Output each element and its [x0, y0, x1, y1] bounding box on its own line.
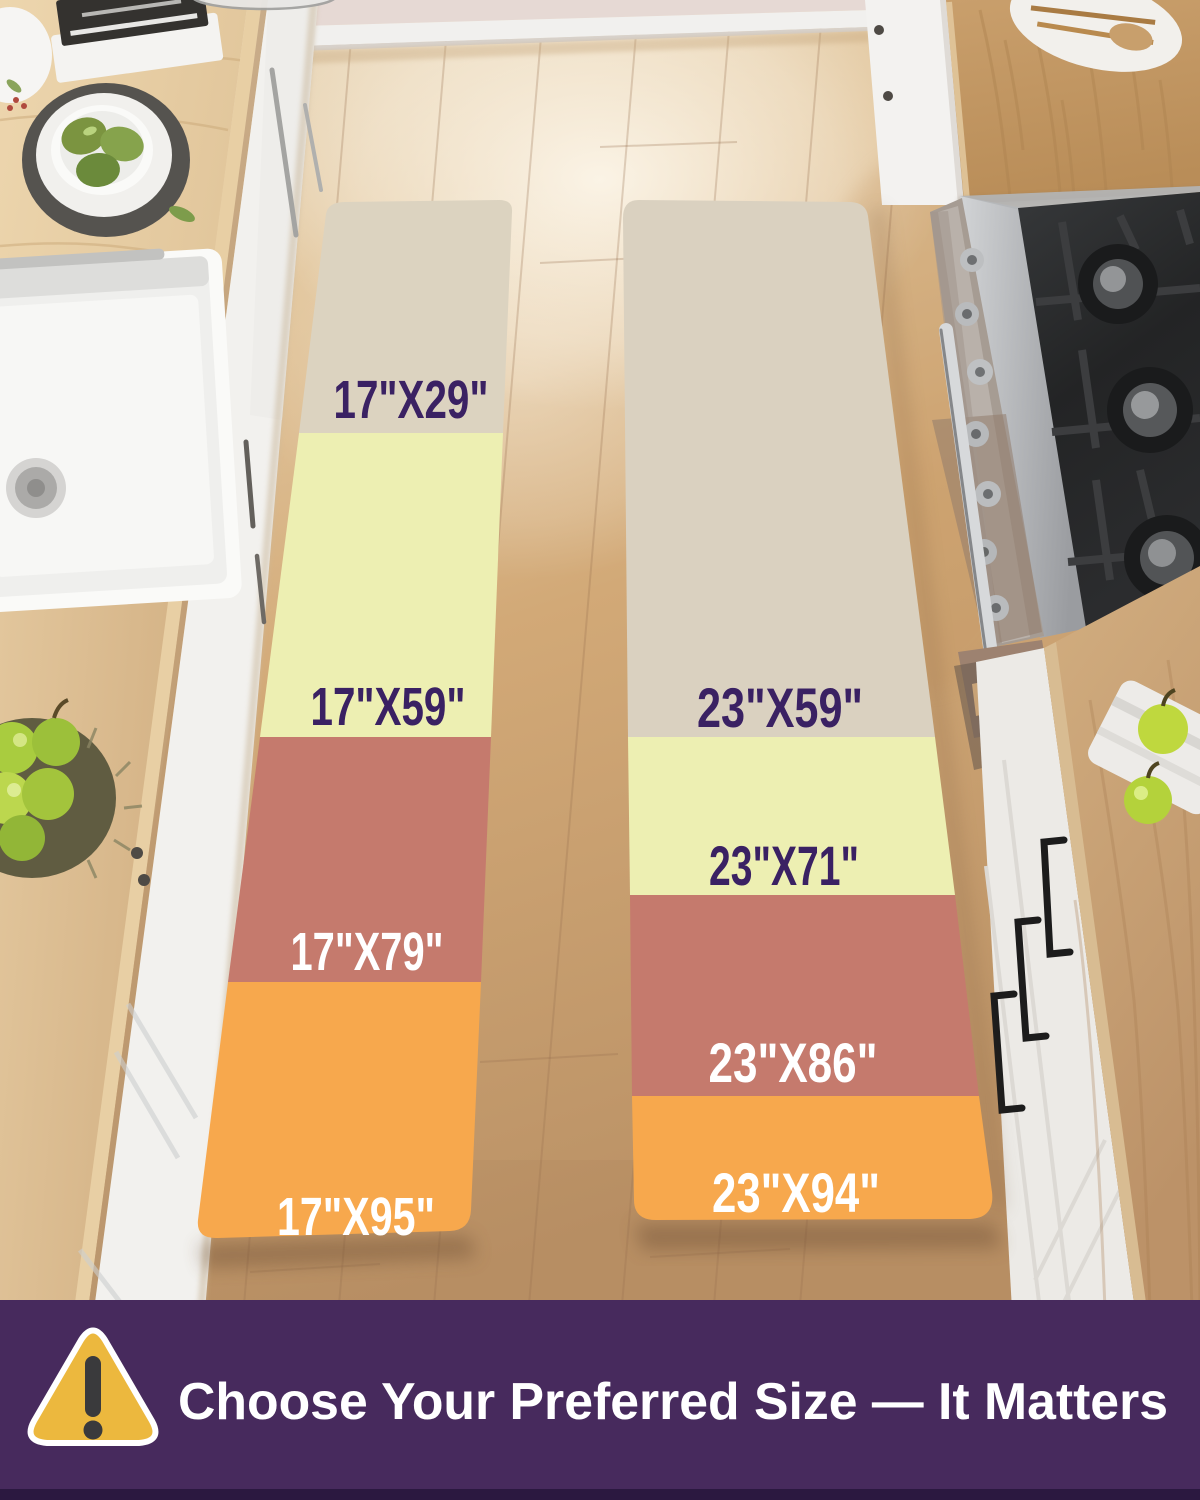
svg-text:23"X59": 23"X59"	[697, 676, 863, 739]
svg-text:17"X79": 17"X79"	[291, 922, 444, 982]
svg-text:17"X95": 17"X95"	[277, 1187, 435, 1247]
svg-text:23"X71": 23"X71"	[709, 834, 859, 897]
svg-text:Choose Your Preferred Size — I: Choose Your Preferred Size — It Matters	[178, 1373, 1168, 1431]
svg-text:17"X59": 17"X59"	[311, 677, 466, 737]
svg-text:23"X86": 23"X86"	[709, 1031, 878, 1094]
svg-text:23"X94": 23"X94"	[712, 1161, 880, 1224]
svg-text:17"X29": 17"X29"	[334, 370, 489, 430]
